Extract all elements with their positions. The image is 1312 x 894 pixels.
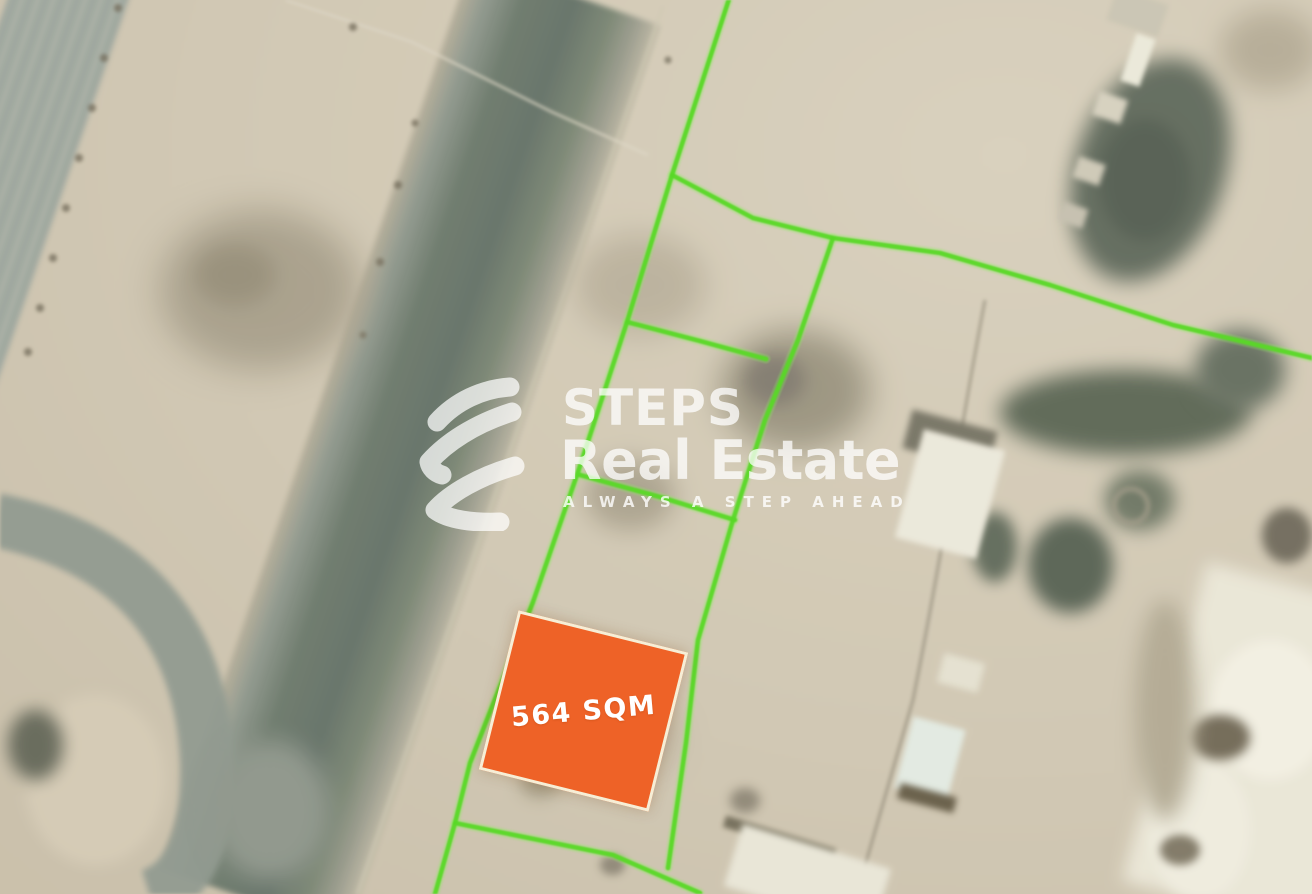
boundary-divider_bottom [455,823,700,893]
satellite-map-canvas: 564 SQM STEPS Real Estate ALWAYS A STEP … [0,0,1312,894]
boundary-right_line [668,238,833,868]
plot-area-label: 564 SQM [510,689,658,733]
boundary-divider_middle [580,475,735,520]
boundary-right_line [668,238,833,868]
boundary-divider_upper [627,322,766,359]
